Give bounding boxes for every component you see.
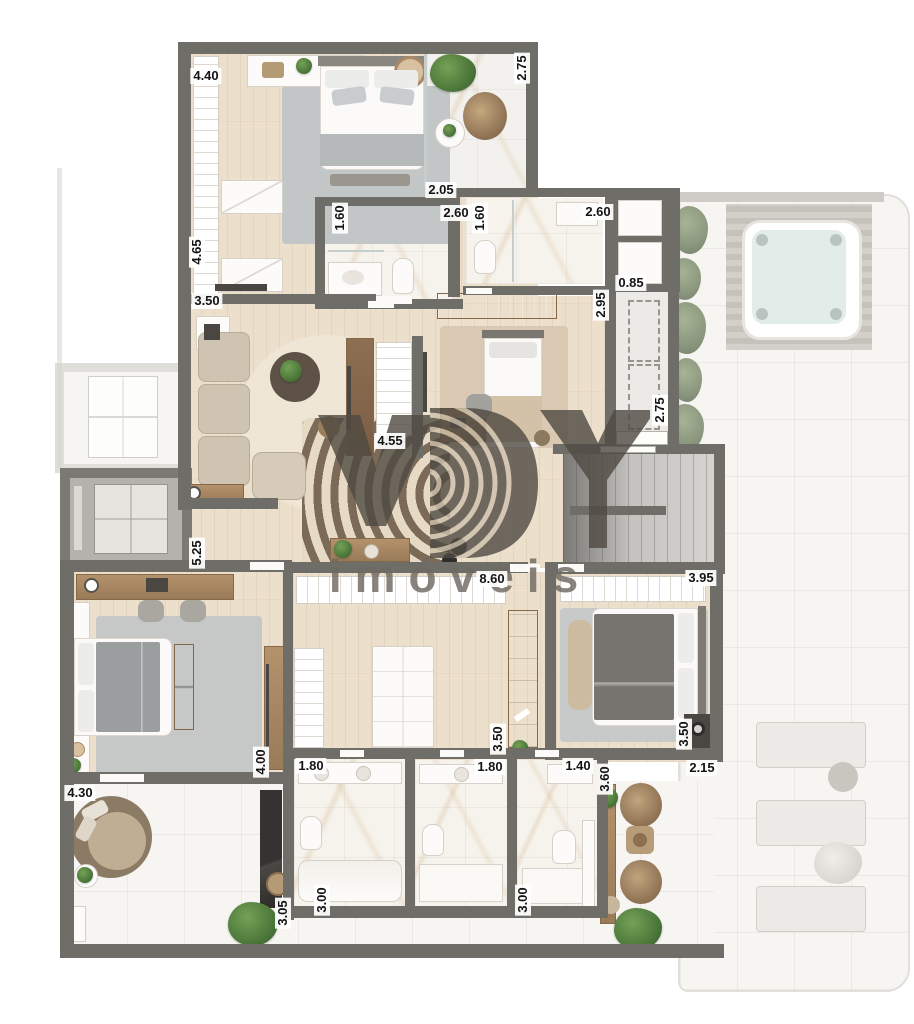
wall-segment <box>412 336 423 458</box>
storage-chest <box>174 644 194 730</box>
bed-headboard <box>698 606 706 728</box>
closet-unit <box>221 180 283 214</box>
shower-screen <box>328 250 384 252</box>
wall-segment <box>283 906 608 918</box>
wall-segment <box>60 560 74 958</box>
door-opening <box>466 288 492 294</box>
dimension-label: 3.00 <box>515 884 531 915</box>
floor-plan: 4.402.754.653.502.051.602.601.602.600.85… <box>0 0 914 1024</box>
bed-pillow <box>374 70 418 88</box>
speaker-icon <box>691 722 705 736</box>
window <box>616 431 668 445</box>
dimension-label: 3.60 <box>597 763 613 794</box>
wicker-chair <box>463 92 507 140</box>
table-decor <box>633 833 647 847</box>
shower-screen <box>512 200 514 282</box>
door-opening <box>250 562 284 570</box>
toilet <box>552 830 576 864</box>
wall-segment <box>668 285 679 453</box>
tv-panel <box>215 284 267 291</box>
sun-lounger <box>756 800 866 846</box>
dimension-label: 3.05 <box>275 897 291 928</box>
door-opening <box>440 750 464 757</box>
dimension-label: 2.75 <box>652 394 668 425</box>
wall-segment <box>178 498 278 509</box>
jet-icon <box>756 308 768 320</box>
glass-door <box>424 54 427 188</box>
dimension-label: 2.05 <box>425 182 456 198</box>
bed-duvet <box>96 642 160 732</box>
wall-segment <box>178 42 538 54</box>
sink-icon <box>342 270 364 285</box>
sofa-cushion <box>198 436 250 486</box>
dimension-label: 1.40 <box>562 758 593 774</box>
hall-closet <box>376 342 412 436</box>
storage-shelf <box>618 200 662 236</box>
tv-screen <box>266 664 269 748</box>
dimension-label: 8.60 <box>476 571 507 587</box>
jet-icon <box>756 234 768 246</box>
dimension-label: 2.60 <box>440 205 471 221</box>
daybed-cushion <box>88 812 146 870</box>
bed-duvet <box>594 614 674 720</box>
laptop-icon <box>450 418 466 428</box>
door-opening <box>368 301 394 308</box>
desk-chair <box>138 600 164 622</box>
wall-segment <box>405 759 415 911</box>
toilet <box>422 824 444 856</box>
sofa-cushion <box>198 384 250 434</box>
dresser-decor <box>262 62 284 78</box>
wall-segment <box>178 42 191 510</box>
dimension-label: 4.00 <box>253 746 269 777</box>
pouf <box>534 430 550 446</box>
door-opening <box>100 774 144 782</box>
closet-island <box>372 646 434 748</box>
wall-segment <box>668 188 680 291</box>
laptop-icon <box>146 578 168 592</box>
bed-pillow <box>678 613 694 663</box>
desk-chair <box>180 600 206 622</box>
elevator-ghost-car <box>88 376 158 458</box>
side-table <box>318 416 340 438</box>
sofa-chaise <box>252 452 306 500</box>
dimension-label: 3.00 <box>314 884 330 915</box>
sun-lounger <box>756 886 866 932</box>
dimension-label: 1.60 <box>472 202 488 233</box>
terrace-parapet <box>678 192 884 202</box>
rattan-armchair <box>620 783 662 827</box>
sink-icon <box>356 766 371 781</box>
dimension-label: 1.80 <box>474 759 505 775</box>
chaise-bench <box>568 620 592 710</box>
dimension-label: 4.65 <box>189 236 205 267</box>
dimension-label: 2.95 <box>593 289 609 320</box>
dimension-label: 3.50 <box>676 718 692 749</box>
dimension-label: 0.85 <box>615 275 646 291</box>
side-table <box>828 762 858 792</box>
desk-chair <box>466 394 492 418</box>
rattan-armchair <box>620 860 662 904</box>
door-opening <box>340 750 364 757</box>
tv-screen <box>347 366 351 430</box>
dimension-label: 2.15 <box>686 760 717 776</box>
jet-icon <box>830 234 842 246</box>
dimension-label: 2.75 <box>514 52 530 83</box>
desk-clock-icon <box>84 578 99 593</box>
wall-niche <box>582 820 595 908</box>
elevator-car <box>94 484 168 554</box>
wall-segment <box>714 444 725 574</box>
sun-lounger <box>756 722 866 768</box>
bed-throw-blanket <box>320 134 424 166</box>
dimension-label: 2.60 <box>582 204 613 220</box>
toilet <box>474 240 496 274</box>
dimension-label: 1.60 <box>332 202 348 233</box>
bed-pillow <box>78 643 94 685</box>
wall-segment <box>710 562 723 762</box>
elevator-rail <box>74 486 82 550</box>
dimension-label: 3.50 <box>191 293 222 309</box>
wall-segment <box>60 944 724 958</box>
dimension-label: 4.30 <box>64 785 95 801</box>
wall-segment <box>315 197 325 309</box>
wall-segment <box>427 188 680 197</box>
closet-wood-unit <box>508 610 538 748</box>
toilet <box>392 258 414 294</box>
shower <box>419 864 503 902</box>
dimension-label: 3.50 <box>490 723 506 754</box>
jet-icon <box>830 308 842 320</box>
dimension-label: 5.25 <box>189 537 205 568</box>
window <box>600 446 656 453</box>
brand-wordmark: imóveis <box>300 549 620 603</box>
bed-pillow <box>78 690 94 732</box>
dimension-label: 4.40 <box>190 68 221 84</box>
bed-pillow <box>678 668 694 718</box>
dimension-label: 1.80 <box>295 758 326 774</box>
toilet <box>300 816 322 850</box>
sink-icon <box>454 767 469 782</box>
door-opening <box>535 750 559 757</box>
bed-bench <box>330 174 410 186</box>
stair-wall <box>570 506 666 515</box>
closet-unit <box>294 648 324 748</box>
single-bed-headboard <box>482 330 544 338</box>
dashed-ac-unit <box>628 300 660 362</box>
dimension-label: 3.95 <box>685 570 716 586</box>
bed-pillow <box>489 342 537 358</box>
shelf-decor <box>204 324 220 340</box>
wall-segment <box>283 562 293 757</box>
tv-screen <box>423 352 427 412</box>
dimension-label: 4.55 <box>374 433 405 449</box>
